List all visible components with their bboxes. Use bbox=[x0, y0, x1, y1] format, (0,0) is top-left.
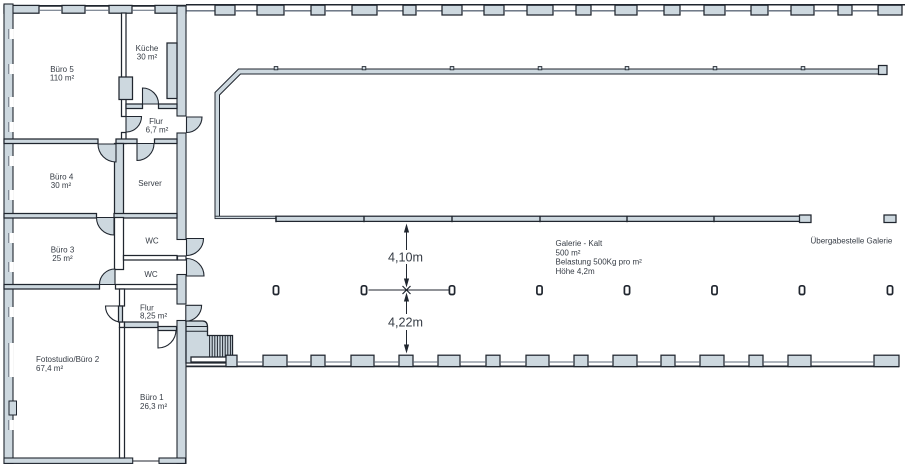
svg-text:500 m²: 500 m² bbox=[556, 248, 581, 257]
svg-text:Höhe 4,2m: Höhe 4,2m bbox=[556, 267, 595, 276]
svg-text:Server: Server bbox=[138, 179, 162, 188]
svg-text:6,7 m²: 6,7 m² bbox=[146, 126, 169, 135]
svg-text:30 m²: 30 m² bbox=[137, 53, 158, 62]
svg-text:8,25 m²: 8,25 m² bbox=[140, 311, 167, 320]
svg-text:Übergabestelle Galerie: Übergabestelle Galerie bbox=[811, 236, 893, 245]
svg-text:Galerie - Kalt: Galerie - Kalt bbox=[556, 239, 603, 248]
svg-text:30 m²: 30 m² bbox=[51, 181, 72, 190]
svg-text:Büro 1: Büro 1 bbox=[140, 393, 164, 402]
svg-text:25 m²: 25 m² bbox=[52, 254, 73, 263]
svg-text:WC: WC bbox=[145, 237, 159, 246]
svg-text:4,10m: 4,10m bbox=[388, 251, 423, 265]
svg-text:67,4 m²: 67,4 m² bbox=[36, 364, 63, 373]
svg-text:110 m²: 110 m² bbox=[50, 74, 75, 83]
svg-text:Fotostudio/Büro 2: Fotostudio/Büro 2 bbox=[36, 355, 100, 364]
svg-text:WC: WC bbox=[144, 270, 158, 279]
svg-text:4,22m: 4,22m bbox=[388, 316, 423, 330]
svg-text:Belastung 500Kg pro m²: Belastung 500Kg pro m² bbox=[556, 258, 643, 267]
svg-text:26,3 m²: 26,3 m² bbox=[140, 402, 167, 411]
